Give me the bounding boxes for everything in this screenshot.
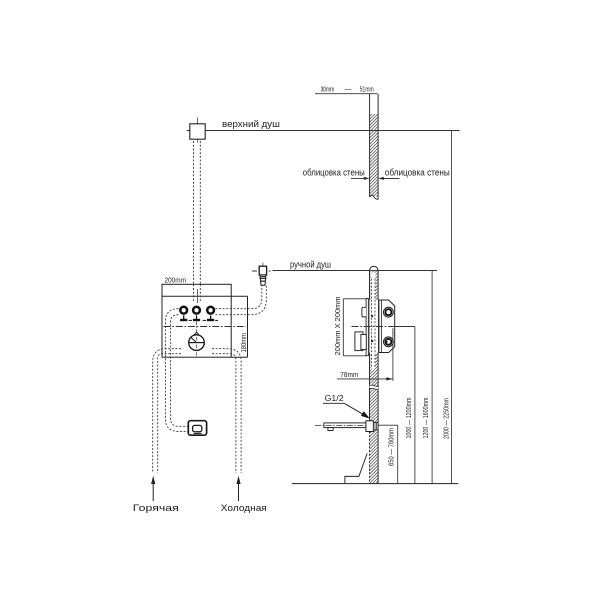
svg-text:ручной душ: ручной душ xyxy=(290,260,331,270)
svg-text:30mm: 30mm xyxy=(321,84,335,93)
svg-text:Холодная: Холодная xyxy=(221,503,267,513)
svg-text:200mm X 200mm: 200mm X 200mm xyxy=(333,297,342,356)
svg-text:верхний душ: верхний душ xyxy=(222,119,280,129)
svg-text:2000 — 2250mm: 2000 — 2250mm xyxy=(444,398,451,439)
svg-text:180mm: 180mm xyxy=(239,333,248,353)
svg-text:облицовка стены: облицовка стены xyxy=(385,167,450,177)
svg-text:1200 — 1600mm: 1200 — 1600mm xyxy=(423,397,430,438)
svg-text:1000 — 1200mm: 1000 — 1200mm xyxy=(406,397,413,438)
svg-text:78mm: 78mm xyxy=(340,370,358,379)
svg-text:—: — xyxy=(345,84,353,93)
svg-text:51mm: 51mm xyxy=(360,84,374,93)
svg-text:650 — 780mm: 650 — 780mm xyxy=(389,428,396,466)
svg-text:G1/2: G1/2 xyxy=(325,394,344,403)
svg-text:облицовка стены: облицовка стены xyxy=(303,167,365,177)
svg-text:Горячая: Горячая xyxy=(133,503,179,513)
svg-text:200mm: 200mm xyxy=(165,275,187,284)
